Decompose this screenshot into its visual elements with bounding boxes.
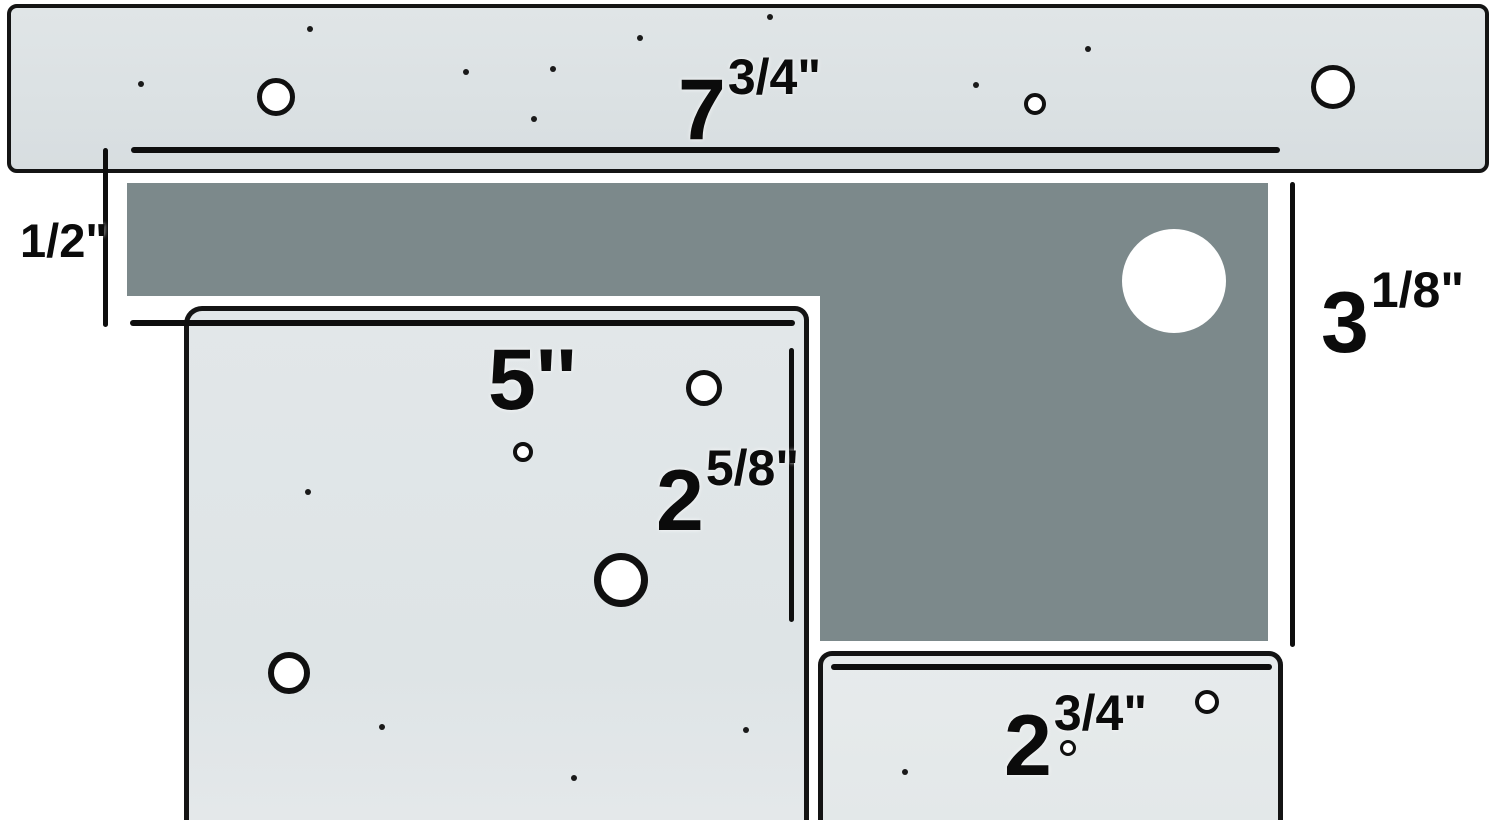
label-right-height-sup: 1/8" bbox=[1371, 265, 1464, 315]
five-plate-dot bbox=[743, 727, 749, 733]
five-plate-dot bbox=[571, 775, 577, 781]
label-five-height-main: 2 bbox=[656, 458, 704, 544]
diagram-canvas: 7 3/4" 1/2" 3 1/8" 5'' 2 5/8" 2 3/4" bbox=[0, 0, 1500, 820]
label-right-height-main: 3 bbox=[1321, 280, 1369, 366]
top-plate-dot bbox=[973, 82, 979, 88]
label-five-height: 2 5/8" bbox=[656, 458, 799, 544]
top-plate-dot bbox=[463, 69, 469, 75]
top-plate-dot bbox=[637, 35, 643, 41]
five-plate-hole bbox=[268, 652, 310, 694]
dimension-line-small-width bbox=[831, 664, 1272, 670]
label-right-height: 3 1/8" bbox=[1321, 280, 1464, 366]
top-plate-dot bbox=[767, 14, 773, 20]
top-plate-dot bbox=[138, 81, 144, 87]
five-plate-dot bbox=[379, 724, 385, 730]
small-plate-dot bbox=[902, 769, 908, 775]
top-plate-hole bbox=[1024, 93, 1046, 115]
label-five-width-main: 5'' bbox=[488, 337, 577, 423]
top-plate-dot bbox=[550, 66, 556, 72]
top-plate-dot bbox=[307, 26, 313, 32]
top-plate-dot bbox=[1085, 46, 1091, 52]
label-five-width: 5'' bbox=[488, 337, 577, 423]
label-five-height-sup: 5/8" bbox=[706, 443, 799, 493]
top-plate-hole bbox=[257, 78, 295, 116]
label-small-width-main: 2 bbox=[1004, 703, 1052, 789]
label-top-width: 7 3/4" bbox=[678, 67, 821, 153]
label-left-gap: 1/2" bbox=[20, 217, 108, 264]
label-small-width-sup: 3/4" bbox=[1054, 688, 1147, 738]
dark-cutout-circle bbox=[1122, 229, 1226, 333]
five-plate-hole bbox=[686, 370, 722, 406]
label-top-width-sup: 3/4" bbox=[728, 52, 821, 102]
top-plate-hole bbox=[1311, 65, 1355, 109]
dimension-line-five-width bbox=[130, 320, 795, 326]
five-plate-dot bbox=[305, 489, 311, 495]
label-small-width: 2 3/4" bbox=[1004, 703, 1147, 789]
top-plate-dot bbox=[531, 116, 537, 122]
five-plate-hole bbox=[513, 442, 533, 462]
label-left-gap-text: 1/2" bbox=[20, 217, 108, 264]
label-top-width-main: 7 bbox=[678, 67, 726, 153]
small-plate-hole bbox=[1195, 690, 1219, 714]
dimension-line-right-height bbox=[1290, 182, 1295, 647]
five-plate-hole bbox=[594, 553, 648, 607]
